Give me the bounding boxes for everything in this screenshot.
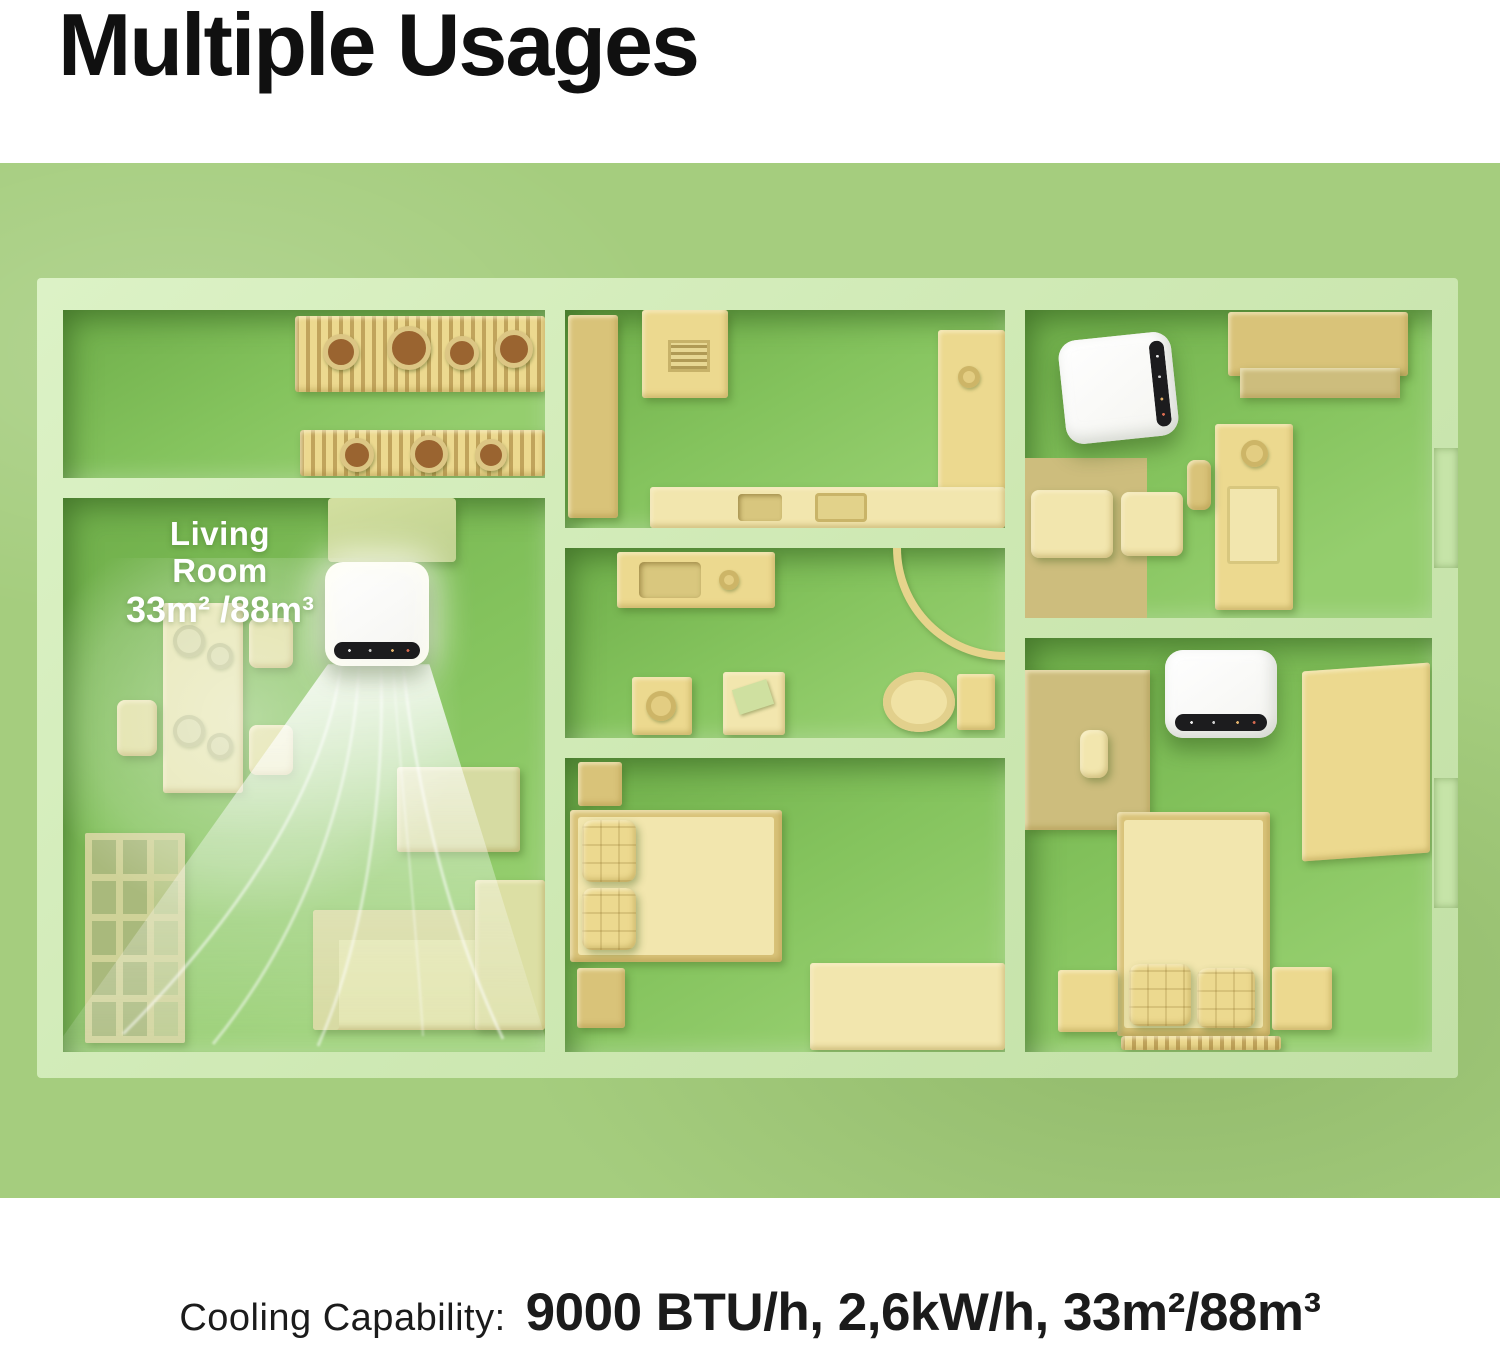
office-desk [1215,424,1293,610]
room-office [1025,310,1432,618]
shower-screen [893,548,1005,660]
sofa-armrest [313,910,339,1030]
ac-unit-office [1057,330,1180,445]
basket-opening [646,691,676,721]
sink-basin [639,562,701,598]
desk-chair [1080,730,1108,778]
kitchen-counter-bottom [650,487,1005,528]
nightstand [1058,970,1118,1032]
plate-icon [207,733,233,759]
oven-grill [668,340,710,372]
bed-foot-mat [1121,1036,1281,1050]
caption-value: 9000 BTU/h, 2,6kW/h, 33m²/88m³ [526,1282,1321,1343]
bookshelf [85,833,185,1043]
cooling-capability-caption: Cooling Capability: 9000 BTU/h, 2,6kW/h,… [0,1282,1500,1343]
product-infographic: Multiple Usages [0,0,1500,1358]
toilet [883,672,955,732]
ac-control-panel [334,642,419,659]
sofa-cushion [1121,492,1183,556]
toilet-tank [957,674,995,730]
room-bedroom-right [1025,638,1432,1052]
dining-table [163,603,243,793]
wall-niche [1434,448,1458,568]
plate-icon [173,715,205,747]
wardrobe [1302,663,1430,862]
coffee-table [397,767,520,852]
pot-icon [340,438,374,472]
nightstand [577,968,625,1028]
faucet-icon [958,366,980,388]
laptop [1227,486,1280,564]
page-title: Multiple Usages [58,0,698,96]
pot-icon [445,336,479,370]
bed-frame [570,810,782,962]
living-room-area: 33m² /88m³ [125,590,315,630]
pillow [1197,968,1255,1028]
fridge-cabinet [568,315,618,518]
ac-wall-bracket [328,498,456,562]
dining-chair [249,725,293,775]
oven-appliance [642,310,728,398]
wall-niche [1434,778,1458,908]
ac-unit-living-room [325,562,429,666]
hero-3d-render: Living Room 33m² /88m³ [0,163,1500,1198]
nightstand [578,762,622,806]
room-bathroom [565,548,1005,738]
pot-icon [410,435,448,473]
pantry-shelf-rack [295,316,545,392]
floor-plan: Living Room 33m² /88m³ [37,278,1458,1078]
pot-icon [495,330,533,368]
bed-frame [1117,812,1270,1036]
room-kitchen [565,310,1005,528]
office-shelf-books [1240,368,1400,398]
ac-unit-bedroom [1165,650,1277,738]
pot-icon [387,326,431,370]
sofa-cushion [1031,490,1113,558]
laundry-basket [632,677,692,735]
pillow [582,888,636,950]
dresser [810,963,1005,1050]
living-room-label: Living Room 33m² /88m³ [125,516,315,630]
nightstand [1272,967,1332,1030]
pot-icon [475,439,507,471]
ac-control-panel [1148,340,1172,426]
sink-icon [738,494,782,521]
caption-label: Cooling Capability: [179,1297,505,1340]
dining-chair [117,700,157,756]
pantry-shelf-rack [300,430,545,476]
washer-lid [732,679,774,715]
desk-chair [1187,460,1211,510]
washing-machine [723,672,785,735]
room-bedroom-middle [565,758,1005,1052]
living-room-name: Living Room [125,516,315,590]
soap-icon [719,570,739,590]
plate-icon [207,643,233,669]
stove-icon [815,493,867,522]
ac-control-panel [1175,714,1267,731]
bathroom-vanity [617,552,775,608]
pillow [582,820,636,882]
pillow [1129,964,1191,1026]
office-wall-shelf [1228,312,1408,376]
sofa-chaise [475,880,545,1030]
room-pantry [63,310,545,478]
pot-icon [323,334,359,370]
mug-icon [1241,440,1268,467]
room-living: Living Room 33m² /88m³ [63,498,545,1052]
